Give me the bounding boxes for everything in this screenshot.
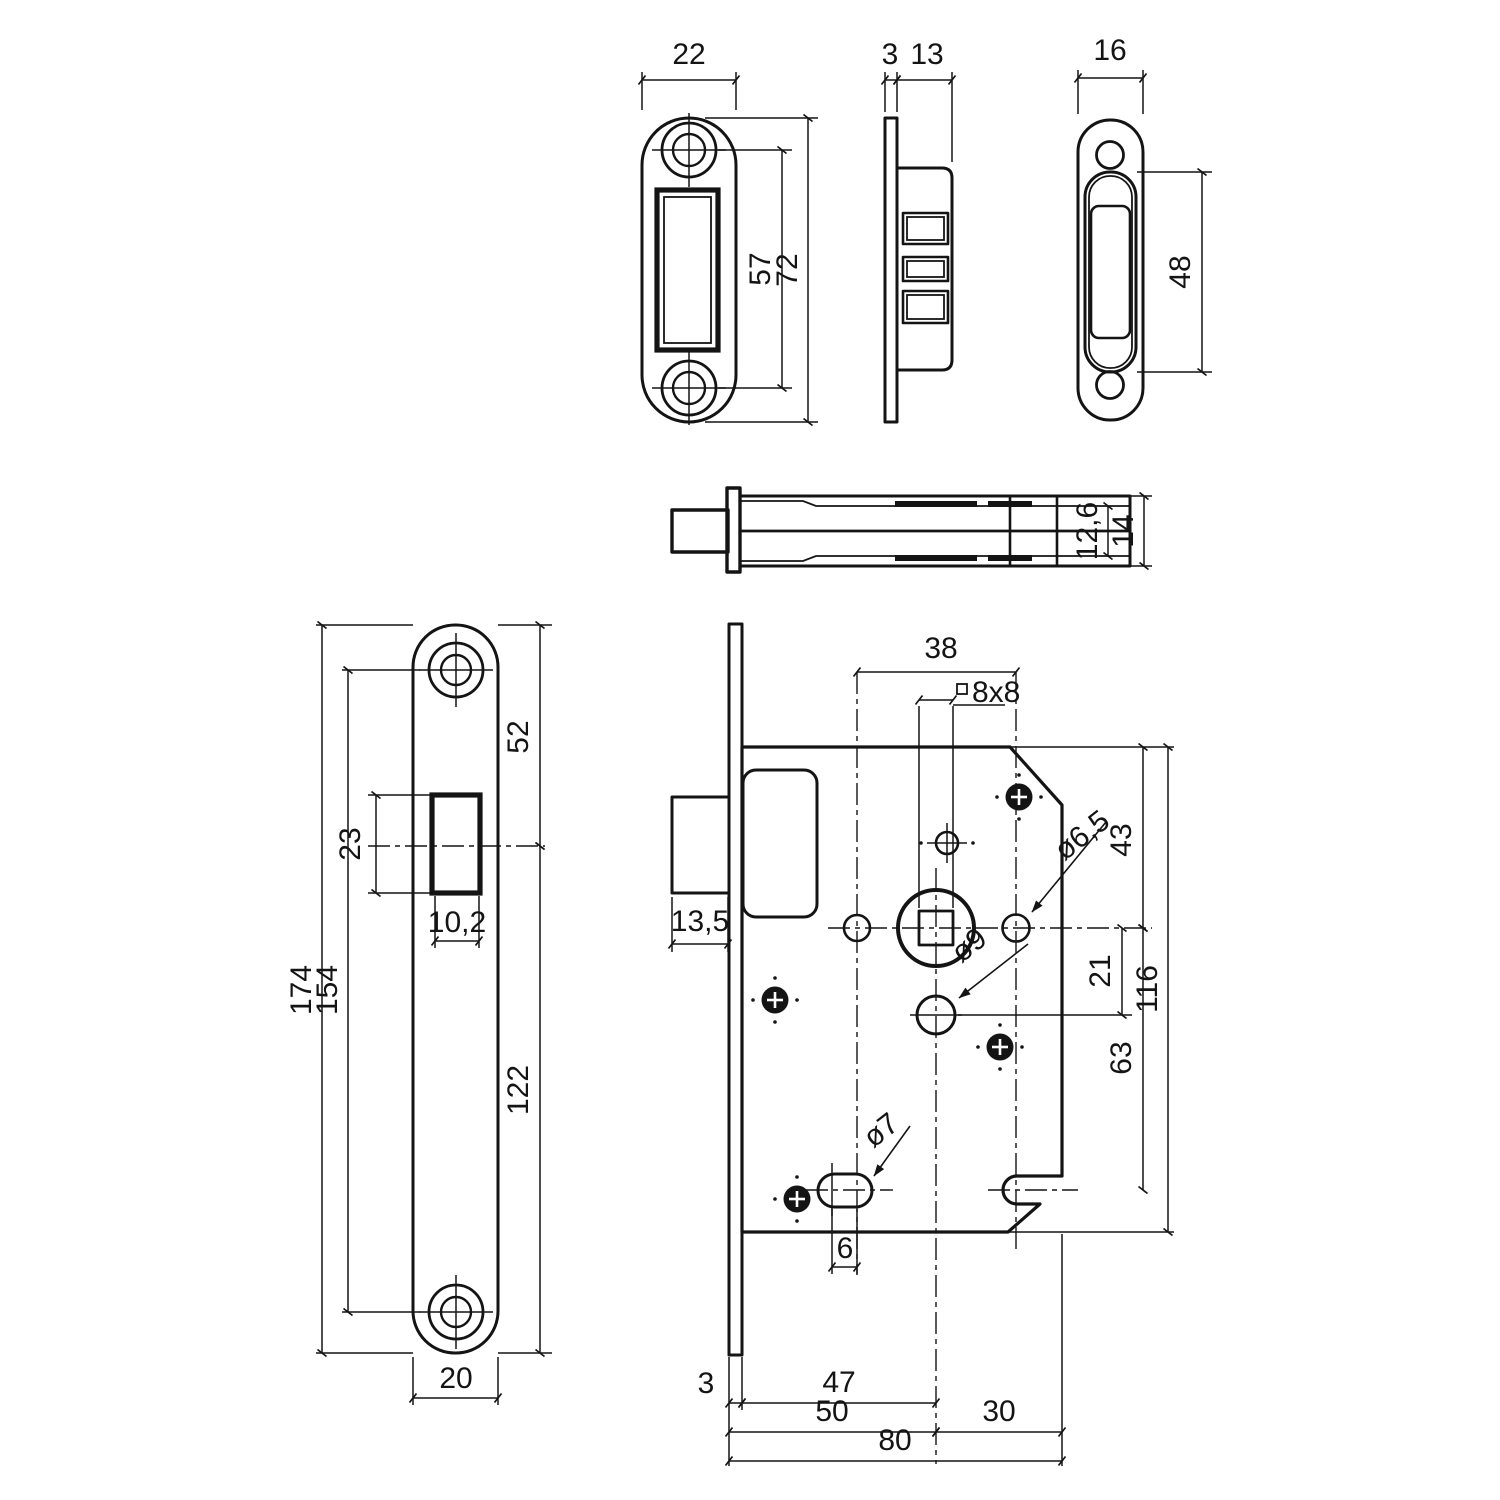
dim-label-slot-height: 48 bbox=[1164, 255, 1197, 288]
dim-label-case-height: 116 bbox=[1131, 965, 1164, 1013]
dim-label-center-to-follower: 21 bbox=[1084, 954, 1117, 987]
technical-drawing-page: 22 57 72 3 13 bbox=[0, 0, 1500, 1500]
dim-label-backset: 50 bbox=[815, 1395, 848, 1428]
dim-label-window-height: 23 bbox=[334, 827, 367, 860]
dim-label-center-to-bottom: 122 bbox=[502, 1065, 535, 1115]
dim-label-body-depth: 13 bbox=[910, 38, 943, 71]
dim-label-faceplate-thickness: 3 bbox=[698, 1367, 715, 1400]
mortise-lock-technical-drawing: 22 57 72 3 13 bbox=[0, 0, 1500, 1500]
dim-label-center-to-slot: 63 bbox=[1105, 1041, 1138, 1074]
dim-label-rear-section: 30 bbox=[982, 1395, 1015, 1428]
background bbox=[0, 0, 1500, 1500]
dim-label-top-to-center: 52 bbox=[502, 720, 535, 753]
dim-label-inner-height: 12,6 bbox=[1071, 502, 1104, 560]
dim-label-hole-spacing: 38 bbox=[924, 632, 957, 665]
dim-label-oval-width: 16 bbox=[1093, 34, 1126, 67]
dim-label-total-width: 80 bbox=[878, 1424, 911, 1457]
dim-label-total-height: 174 bbox=[285, 965, 318, 1015]
dim-label-plate-thickness: 3 bbox=[882, 38, 899, 71]
dim-label-body-height: 14 bbox=[1107, 514, 1140, 547]
dim-label-bolt-depth: 13,5 bbox=[671, 905, 729, 938]
dim-label-strike-width: 22 bbox=[672, 38, 705, 71]
dim-label-spindle-square: 8x8 bbox=[972, 676, 1020, 709]
dim-label-window-width: 10,2 bbox=[428, 906, 486, 939]
dim-label-strike-height: 72 bbox=[771, 253, 804, 286]
dim-label-slot-length: 6 bbox=[837, 1232, 854, 1265]
dim-label-width: 20 bbox=[439, 1362, 472, 1395]
